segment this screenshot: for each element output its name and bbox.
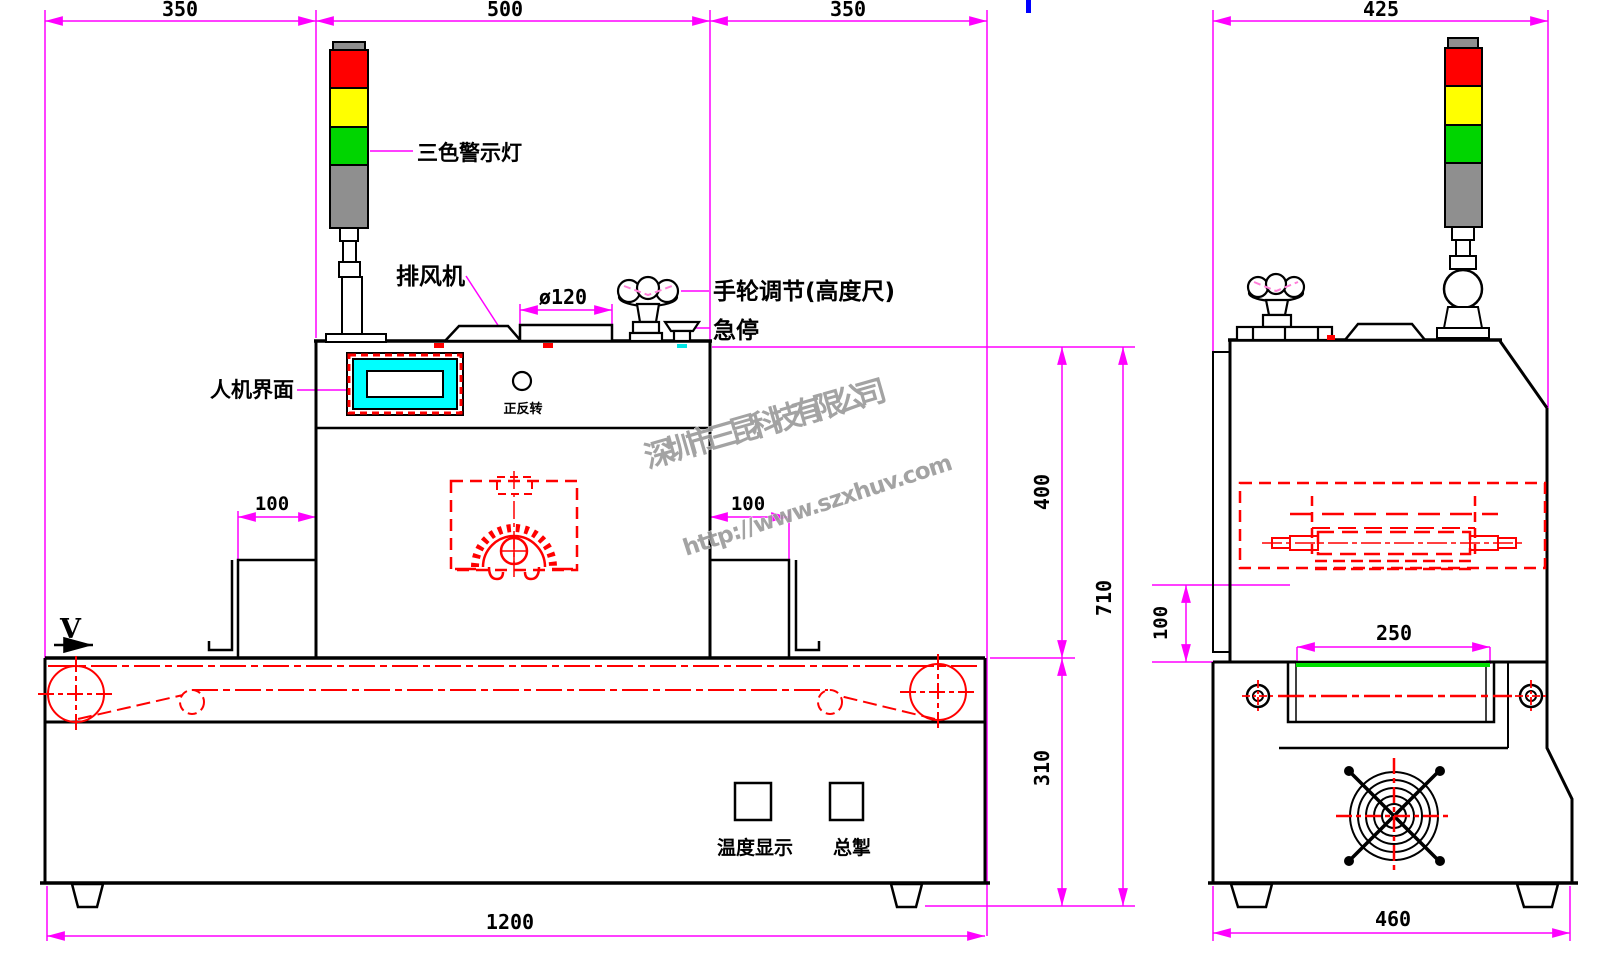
tower-pole-segment <box>1452 227 1474 240</box>
tower-pole-segment <box>340 228 358 241</box>
label-tower-light: 三色警示灯 <box>417 141 522 165</box>
dim-text-500: 500 <box>487 0 523 21</box>
deck-mark-cyan <box>677 344 687 348</box>
component-labels: 三色警示灯 排风机 手轮调节(高度尺) 急停 人机界面 正反转 温度显示 总掣 … <box>59 141 895 859</box>
estop-button <box>665 322 699 341</box>
dim-text-350-left: 350 <box>162 0 198 21</box>
tower-base-body <box>330 165 368 228</box>
dim-text-duct: ø120 <box>539 285 587 309</box>
tower-mount-plate <box>1437 328 1489 338</box>
dim-text-310: 310 <box>1030 750 1054 786</box>
label-forward-reverse: 正反转 <box>503 401 542 417</box>
handwheel-side <box>1237 274 1332 340</box>
tower-pole-segment <box>343 241 356 262</box>
side-thin-panel <box>1213 352 1230 652</box>
side-foot-left <box>1231 884 1272 907</box>
tower-pole-segment <box>1450 256 1476 269</box>
belt-centerlines <box>48 666 982 719</box>
temperature-display-window <box>735 783 771 820</box>
watermark: 深圳市三昆科技有限公司 http://www.szxhuv.com <box>641 374 955 562</box>
side-foot-right <box>1517 884 1558 907</box>
tower-green-lamp <box>330 127 368 165</box>
tower-red-lamp <box>1445 48 1482 86</box>
dim-text-100-left: 100 <box>255 493 289 515</box>
right-inlet-support <box>710 560 789 658</box>
dim-text-350-right: 350 <box>830 0 866 21</box>
tower-yellow-lamp <box>1445 86 1482 125</box>
uv-lamp-symbol <box>451 471 577 579</box>
main-switch-window <box>830 783 863 820</box>
tension-roller-left <box>180 690 204 714</box>
lamp-tube-side <box>1262 496 1524 569</box>
right-inlet-bracket <box>796 560 819 650</box>
tower-ball-joint <box>1444 270 1482 308</box>
left-inlet-bracket <box>209 560 232 650</box>
dim-text-400: 400 <box>1030 474 1054 510</box>
tower-red-lamp <box>330 50 368 88</box>
tower-pole-segment <box>339 262 360 277</box>
technical-drawing-canvas: 350 500 350 ø120 100 100 400 310 710 120… <box>0 0 1598 953</box>
dim-text-710: 710 <box>1092 580 1116 616</box>
tower-light-side <box>1437 38 1489 338</box>
dim-text-460: 460 <box>1375 907 1411 931</box>
tower-base-body <box>1445 163 1482 227</box>
tower-cap <box>333 42 365 50</box>
watermark-company: 深圳市三昆科技有限公司 <box>641 374 889 476</box>
tower-light-front <box>326 42 386 342</box>
front-foot-right <box>891 884 922 907</box>
label-handwheel: 手轮调节(高度尺) <box>713 278 895 305</box>
dim-text-250: 250 <box>1376 621 1412 645</box>
tower-neck <box>1444 307 1482 328</box>
label-main-switch: 总掣 <box>833 836 871 859</box>
exhaust-fan-cover <box>445 326 521 341</box>
side-exhaust-cover <box>1345 324 1425 340</box>
label-estop: 急停 <box>713 317 759 344</box>
dim-text-1200: 1200 <box>486 910 534 934</box>
hmi-display <box>367 371 443 397</box>
tower-pole <box>342 277 362 335</box>
blue-tick-mark <box>1026 0 1031 13</box>
side-view-outline <box>1208 274 1578 907</box>
dim-text-100-side: 100 <box>1150 606 1172 640</box>
forward-reverse-button <box>513 372 531 390</box>
left-inlet-support <box>238 560 316 658</box>
label-belt-direction: V <box>59 614 82 645</box>
tower-yellow-lamp <box>330 88 368 127</box>
side-right-edge <box>1547 408 1572 883</box>
label-temperature-display: 温度显示 <box>717 836 793 859</box>
machine-drawing: 350 500 350 ø120 100 100 400 310 710 120… <box>0 0 1598 953</box>
tower-cap <box>1448 38 1478 48</box>
side-belt-housing <box>1288 662 1494 722</box>
deck-mark-red <box>1327 335 1335 340</box>
dim-text-425: 425 <box>1363 0 1399 21</box>
deck-mark-red <box>543 343 553 348</box>
label-exhaust-fan: 排风机 <box>396 264 465 290</box>
duct-housing <box>520 325 612 341</box>
deck-mark-red <box>434 343 444 348</box>
tension-roller-right <box>818 690 842 714</box>
front-view-outline <box>40 277 990 907</box>
dimension-lines <box>45 10 1570 941</box>
tower-green-lamp <box>1445 125 1482 163</box>
hmi-screen <box>347 353 463 415</box>
side-chamfer <box>1500 341 1547 408</box>
leader-exhaust-fan <box>466 276 503 333</box>
label-hmi: 人机界面 <box>210 378 294 402</box>
front-foot-left <box>72 884 103 907</box>
tower-pole-segment <box>1456 240 1470 256</box>
watermark-url: http://www.szxhuv.com <box>680 450 955 561</box>
tower-mount-plate <box>326 334 386 342</box>
